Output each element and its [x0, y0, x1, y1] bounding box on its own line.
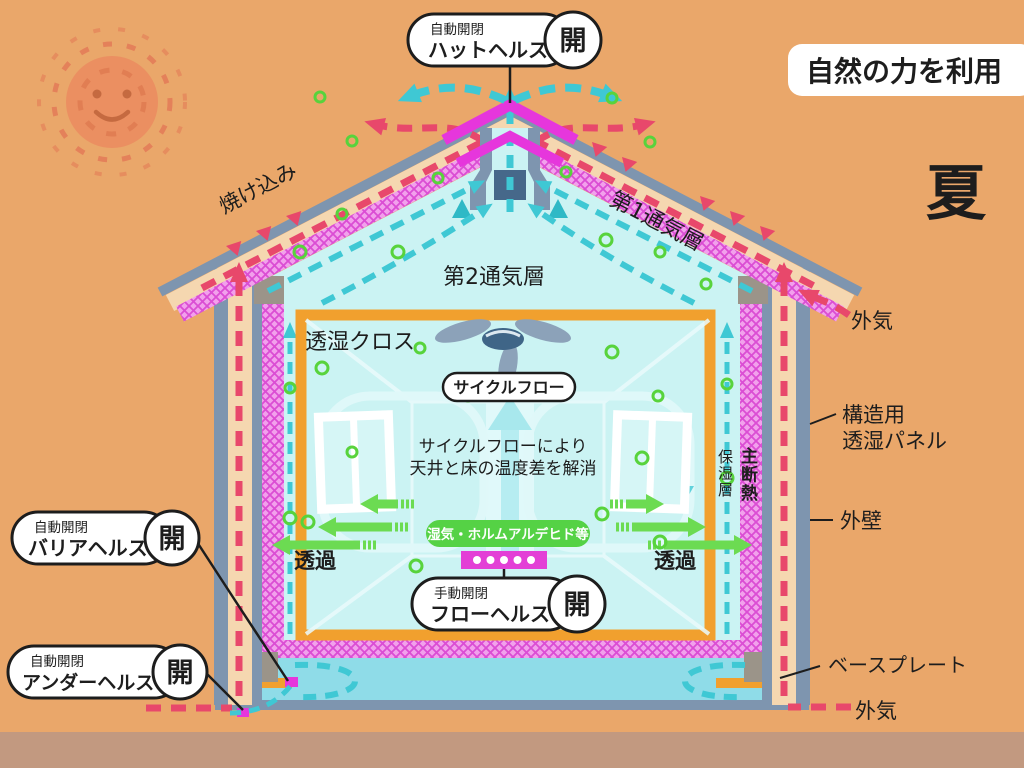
air-layer2-label: 第2通気層	[443, 265, 545, 290]
floor-insulation	[262, 640, 762, 658]
flow-mode: 手動開閉	[434, 586, 488, 602]
hat-state: 開	[560, 26, 587, 57]
hat-name: ハットヘルス	[428, 38, 548, 62]
ground	[0, 732, 1024, 768]
base-plate-label: ベースプレート	[828, 653, 967, 677]
structural-panel-label-2: 透湿パネル	[842, 429, 947, 453]
sun-eye-right	[123, 90, 132, 99]
outside-air-bottom-label: 外気	[855, 699, 897, 723]
flow-name: フローヘルス	[430, 602, 550, 626]
house-ventilation-diagram: 自然の力を利用 夏 焼け込み 第1通気層 第2通気層 透湿クロス 外気 構造用 …	[0, 0, 1024, 768]
main-insulation-label: 主断熱	[741, 446, 758, 504]
under-name: アンダーヘルス	[22, 671, 154, 694]
sun-eye-left	[93, 90, 102, 99]
barrier-state: 開	[159, 524, 186, 555]
moisture-pill: 湿気・ホルムアルデヒド等	[426, 520, 590, 547]
title-badge-label: 自然の力を利用	[806, 55, 1002, 88]
season-label: 夏	[926, 159, 987, 229]
cycle-flow-pill: サイクルフロー	[443, 373, 575, 401]
moisture-pill-label: 湿気・ホルムアルデヒド等	[427, 526, 589, 543]
outside-air-top-label: 外気	[851, 309, 893, 333]
cycle-desc-line1: サイクルフローにより	[419, 437, 588, 457]
barrier-name: バリアヘルス	[28, 536, 148, 560]
window-left	[318, 415, 391, 509]
floor-slab	[215, 700, 809, 710]
under-mode: 自動開閉	[30, 654, 84, 670]
cycle-desc-line2: 天井と床の温度差を解消	[410, 459, 597, 479]
outer-wall-label: 外壁	[840, 509, 882, 533]
permeate-left-label: 透過	[294, 549, 337, 573]
flow-state: 開	[564, 590, 591, 621]
flow-health-pill: 手動開閉 フローヘルス 開	[412, 569, 605, 632]
hat-mode: 自動開閉	[430, 22, 484, 38]
left-wall-layers	[214, 268, 284, 705]
window-right	[614, 415, 687, 509]
floor-structure	[215, 640, 809, 717]
flow-vent	[461, 551, 547, 569]
diagram-stage: 自然の力を利用 夏 焼け込み 第1通気層 第2通気層 透湿クロス 外気 構造用 …	[0, 0, 1024, 768]
moisture-retention-layer-label: 保湿層	[718, 448, 733, 499]
cycle-flow-label: サイクルフロー	[453, 378, 564, 397]
permeate-right-label: 透過	[654, 549, 697, 573]
under-state: 開	[167, 658, 194, 689]
barrier-mode: 自動開閉	[34, 520, 88, 536]
structural-panel-label-1: 構造用	[842, 403, 905, 427]
permeable-cloth-label: 透湿クロス	[305, 330, 415, 355]
